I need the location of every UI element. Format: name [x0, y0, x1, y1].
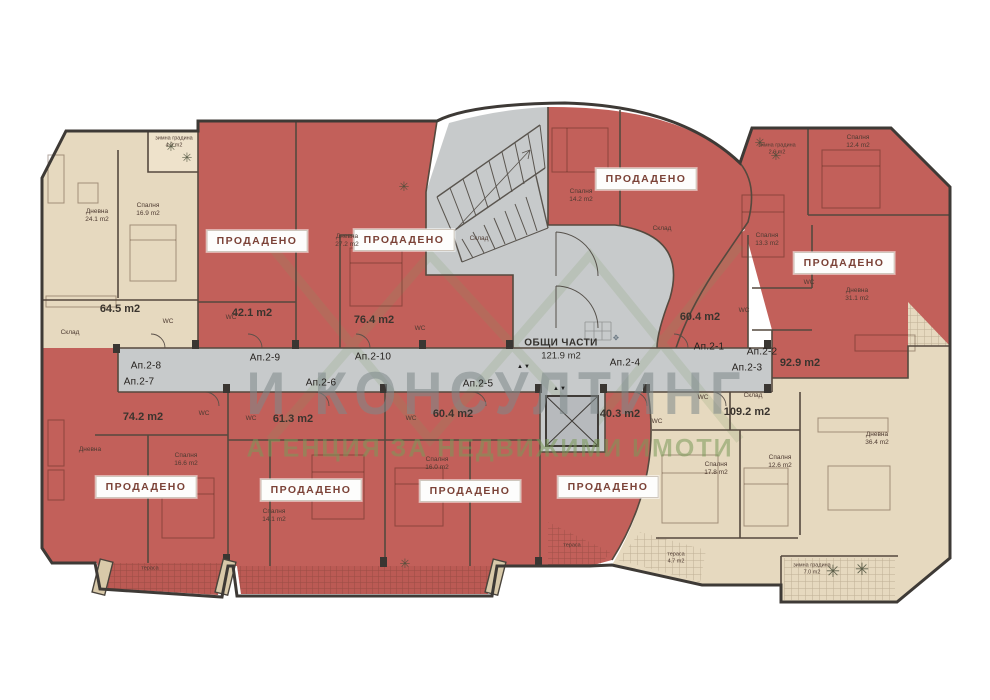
sold-badge-ap2-7: ПРОДАДЕНО — [96, 476, 197, 498]
area-label-ap2-7: 74.2 m2 — [123, 411, 163, 423]
room-label: тераса4.7 m2 — [667, 551, 684, 564]
room-label: тераса — [141, 566, 158, 573]
sold-badge-ap2-9: ПРОДАДЕНО — [207, 230, 308, 252]
lift-direction-icon: ▲▼ — [553, 386, 567, 392]
corridor-label-ap2-9: Ап.2-9 — [250, 353, 281, 364]
palm-icon: ✳ — [771, 148, 782, 164]
corridor-label-ap2-7: Ап.2-7 — [124, 377, 155, 388]
corridor-label-ap2-2: Ап.2-2 — [747, 347, 778, 358]
room-label: Дневна24.1 m2 — [85, 208, 109, 224]
common-area-title: ОБЩИ ЧАСТИ — [524, 338, 597, 349]
room-label: WC — [698, 394, 709, 402]
room-label: тераса — [563, 543, 580, 550]
room-label: WC — [246, 415, 257, 423]
room-label: Дневна27.2 m2 — [335, 233, 359, 249]
watermark-agency-tagline: АГЕНЦИЯ ЗА НЕДВИЖИМИ ИМОТИ — [246, 435, 733, 464]
palm-icon: ✳ — [755, 135, 766, 151]
sold-badge-ap2-5: ПРОДАДЕНО — [420, 480, 521, 502]
room-label: Спалня16.9 m2 — [136, 202, 160, 218]
room-label: Спалня16.6 m2 — [174, 452, 198, 468]
room-label: Склад — [744, 392, 763, 400]
room-label: WC — [163, 318, 174, 326]
stamp-icon: ❖ — [612, 334, 619, 343]
area-label-ap2-6: 61.3 m2 — [273, 413, 313, 425]
room-label: Спалня16.0 m2 — [425, 456, 449, 472]
room-label: WC — [652, 418, 663, 426]
corridor-label-ap2-6: Ап.2-6 — [306, 378, 337, 389]
sold-badge-ap2-2: ПРОДАДЕНО — [794, 252, 895, 274]
area-label-ap2-8: 64.5 m2 — [100, 303, 140, 315]
palm-icon: ✳ — [400, 556, 411, 572]
corridor-label-ap2-3: Ап.2-3 — [732, 363, 763, 374]
corridor-label-ap2-8: Ап.2-8 — [131, 361, 162, 372]
area-label-ap2-1: 60.4 m2 — [680, 311, 720, 323]
room-label: WC — [199, 410, 210, 418]
watermark-agency-name: И КОНСУЛТИНГ — [247, 359, 748, 428]
corridor-label-ap2-10: Ап.2-10 — [355, 352, 391, 363]
room-label: Дневна31.1 m2 — [845, 287, 869, 303]
palm-icon: ✳ — [399, 179, 410, 195]
common-area-size: 121.9 m2 — [541, 351, 581, 362]
room-label: Спалня12.6 m2 — [768, 454, 792, 470]
corridor-label-ap2-5: Ап.2-5 — [463, 379, 494, 390]
room-label: WC — [226, 314, 237, 322]
corridor-label-ap2-4: Ап.2-4 — [610, 358, 641, 369]
room-label: Спалня13.3 m2 — [755, 232, 779, 248]
room-label: Дневна36.4 m2 — [865, 431, 889, 447]
room-label: Спалня17.8 m2 — [704, 461, 728, 477]
room-label: Склад — [470, 235, 489, 243]
floor-plan-drawing — [0, 0, 990, 700]
palm-icon: ✳ — [182, 150, 193, 166]
room-label: Склад — [61, 329, 80, 337]
area-label-ap2-4: 40.3 m2 — [600, 408, 640, 420]
room-label: Склад — [653, 225, 672, 233]
room-label: WC — [739, 307, 750, 315]
corridor-label-ap2-1: Ап.2-1 — [694, 342, 725, 353]
room-label: Спалня14.2 m2 — [569, 188, 593, 204]
sold-badge-ap2-4: ПРОДАДЕНО — [558, 476, 659, 498]
palm-icon: ✳ — [826, 562, 840, 582]
lift-direction-icon: ▲▼ — [517, 364, 531, 370]
room-label: WC — [406, 415, 417, 423]
room-label: Спалня12.4 m2 — [846, 134, 870, 150]
sold-badge-ap2-6: ПРОДАДЕНО — [261, 479, 362, 501]
palm-icon: ✳ — [855, 560, 869, 580]
room-label: Спалня14.1 m2 — [262, 508, 286, 524]
sold-badge-ap2-10: ПРОДАДЕНО — [354, 229, 455, 251]
room-label: WC — [804, 279, 815, 287]
area-label-ap2-3: 109.2 m2 — [724, 406, 770, 418]
floor-plan: И КОНСУЛТИНГ АГЕНЦИЯ ЗА НЕДВИЖИМИ ИМОТИ … — [0, 0, 990, 700]
sold-badge-ap2-1: ПРОДАДЕНО — [596, 168, 697, 190]
palm-icon: ✳ — [166, 139, 177, 155]
room-label: Дневна — [79, 446, 101, 454]
area-label-ap2-5: 60.4 m2 — [433, 408, 473, 420]
room-label: WC — [415, 325, 426, 333]
terrace-ap2-5-6-hatch — [237, 566, 492, 594]
area-label-ap2-9: 42.1 m2 — [232, 307, 272, 319]
area-label-ap2-10: 76.4 m2 — [354, 314, 394, 326]
area-label-ap2-2: 92.9 m2 — [780, 357, 820, 369]
